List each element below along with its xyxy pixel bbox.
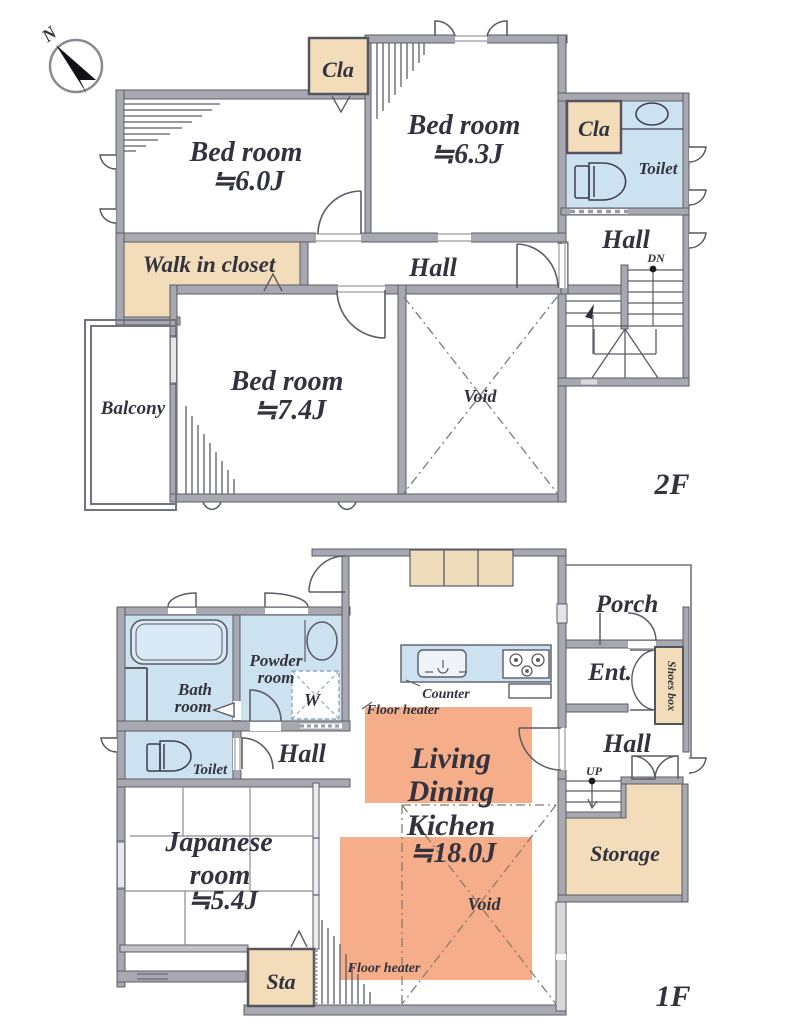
svg-text:Cla: Cla [322,57,354,82]
svg-text:Void: Void [463,386,497,406]
svg-text:Floor heater: Floor heater [347,961,421,976]
svg-text:Hall: Hall [601,225,650,254]
svg-text:Shoes box: Shoes box [665,661,679,711]
svg-text:Bed room: Bed room [230,366,344,397]
svg-text:Bed room: Bed room [407,110,521,141]
svg-text:Toilet: Toilet [193,762,228,778]
svg-text:Walk in closet: Walk in closet [143,252,276,277]
svg-text:Japanese: Japanese [164,827,272,858]
svg-text:≒6.0J: ≒6.0J [212,166,285,197]
svg-text:1F: 1F [655,980,690,1013]
svg-text:Ent.: Ent. [587,659,632,686]
svg-text:Bed room: Bed room [189,137,303,168]
svg-text:Floor heater: Floor heater [366,703,440,718]
svg-text:Porch: Porch [595,591,659,618]
svg-text:≒7.4J: ≒7.4J [254,395,327,426]
svg-text:Toilet: Toilet [638,159,678,178]
svg-text:Counter: Counter [422,687,470,702]
svg-text:W: W [304,690,322,710]
svg-text:Hall: Hall [408,253,457,282]
svg-text:room: room [258,668,295,687]
svg-text:2F: 2F [653,468,689,501]
svg-text:Balcony: Balcony [100,398,166,419]
svg-text:≒6.3J: ≒6.3J [431,139,504,170]
svg-text:Void: Void [467,894,501,914]
svg-text:≒5.4J: ≒5.4J [188,885,259,915]
svg-text:Dining: Dining [407,775,495,808]
svg-text:Living: Living [410,742,491,775]
svg-text:UP: UP [586,764,603,778]
svg-text:Storage: Storage [590,841,660,866]
svg-text:Cla: Cla [578,116,610,141]
svg-text:Hall: Hall [602,729,651,758]
svg-text:≒18.0J: ≒18.0J [410,838,497,869]
svg-text:Hall: Hall [277,739,326,768]
svg-text:room: room [175,697,212,716]
svg-text:Sta: Sta [266,969,295,994]
svg-text:DN: DN [646,251,666,265]
